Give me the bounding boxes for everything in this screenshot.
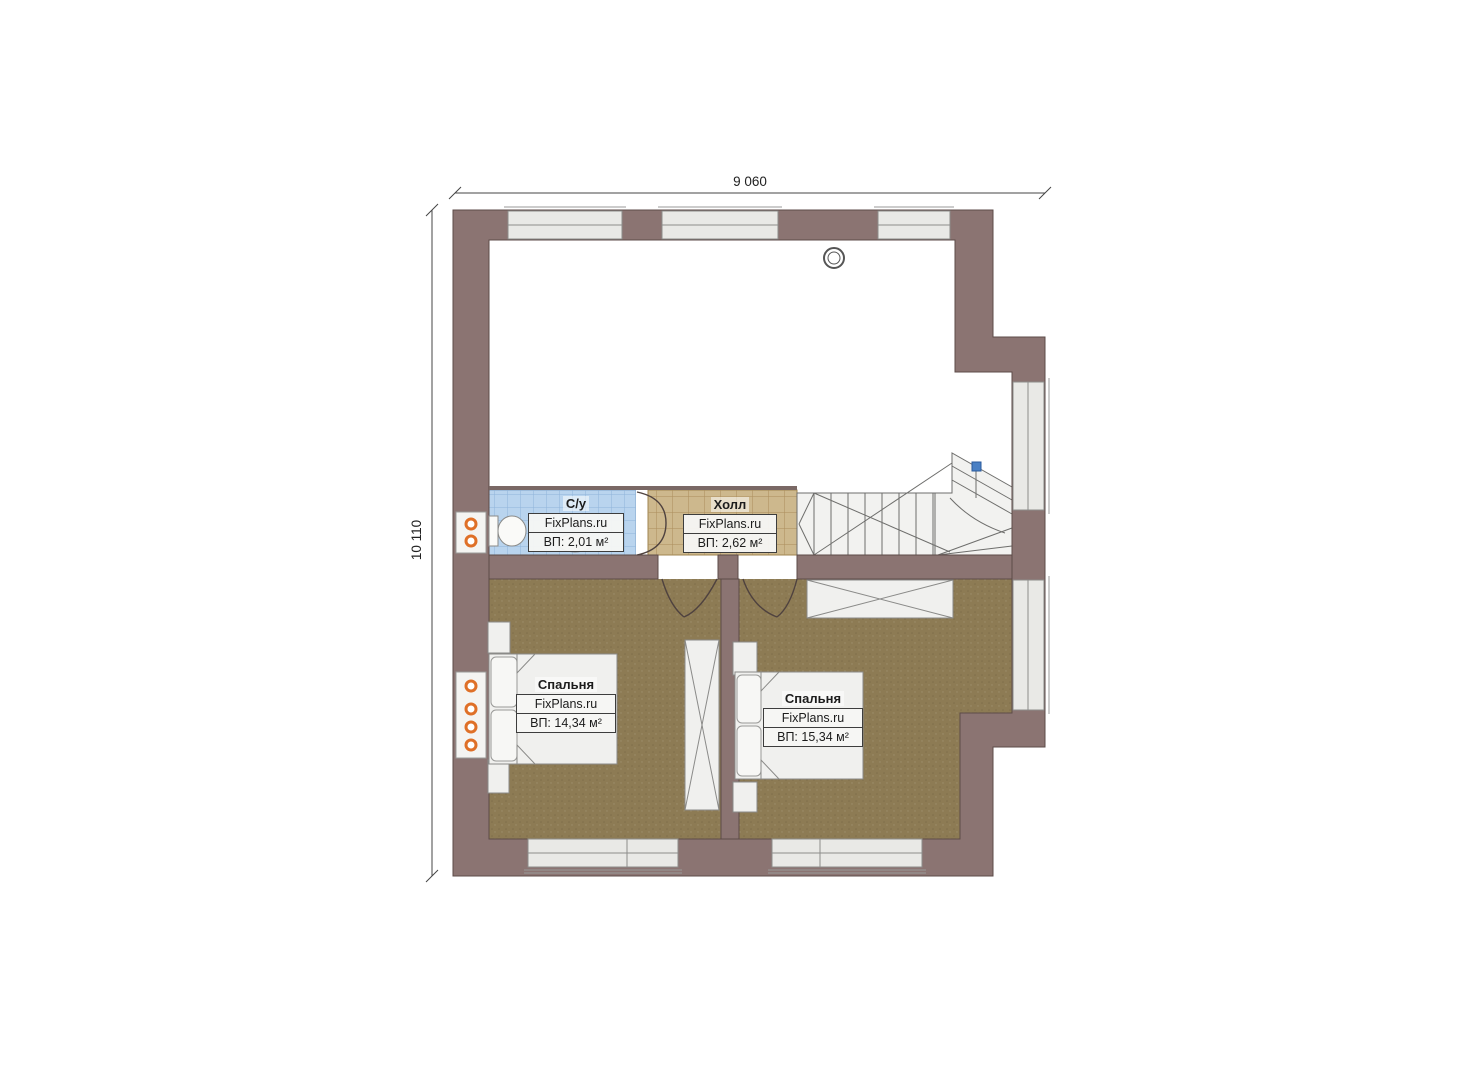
room-area-text: ВП: 14,34 м²	[517, 714, 615, 732]
room-label-hall: Холл FixPlans.ru ВП: 2,62 м²	[684, 497, 776, 553]
stair-direction-marker	[972, 462, 981, 471]
dimension-label-left: 10 110	[409, 510, 429, 570]
wardrobe-icon	[807, 580, 953, 618]
dimension-label-top: 9 060	[700, 174, 800, 189]
pillow-icon	[737, 675, 761, 723]
room-label-bathroom: С/у FixPlans.ru ВП: 2,01 м²	[529, 496, 623, 552]
watermark-text: FixPlans.ru	[684, 515, 776, 534]
room-info-box: FixPlans.ru ВП: 2,62 м²	[683, 514, 777, 553]
bathroom-door-threshold	[636, 490, 648, 555]
pillow-icon	[491, 710, 517, 761]
nightstand-icon	[488, 760, 509, 793]
nightstand-icon	[733, 782, 757, 812]
room-label-bedroom-left: Спальня FixPlans.ru ВП: 14,34 м²	[517, 677, 615, 733]
radiator-dot-icon	[466, 722, 476, 732]
floor-plan-page: 9 060 10 110 С/у FixPlans.ru ВП: 2,01 м²…	[0, 0, 1474, 1080]
room-info-box: FixPlans.ru ВП: 14,34 м²	[516, 694, 616, 733]
toilet-icon	[489, 516, 526, 546]
room-area-text: ВП: 2,01 м²	[529, 533, 623, 551]
room-area-text: ВП: 15,34 м²	[764, 728, 862, 746]
radiator-niche-bathroom	[456, 512, 486, 553]
radiator-dot-icon	[466, 536, 476, 546]
chimney-circle-icon	[824, 248, 844, 268]
radiator-dot-icon	[466, 519, 476, 529]
watermark-text: FixPlans.ru	[764, 709, 862, 728]
watermark-text: FixPlans.ru	[517, 695, 615, 714]
room-label-bedroom-right: Спальня FixPlans.ru ВП: 15,34 м²	[764, 691, 862, 747]
nightstand-icon	[733, 642, 757, 675]
pillow-icon	[491, 657, 517, 707]
pillow-icon	[737, 726, 761, 776]
room-info-box: FixPlans.ru ВП: 15,34 м²	[763, 708, 863, 747]
room-info-box: FixPlans.ru ВП: 2,01 м²	[528, 513, 624, 552]
room-title: Спальня	[535, 677, 597, 692]
room-title: С/у	[563, 496, 589, 511]
radiator-niche-bedroom	[456, 672, 486, 758]
watermark-text: FixPlans.ru	[529, 514, 623, 533]
room-title: Спальня	[782, 691, 844, 706]
radiator-dot-icon	[466, 704, 476, 714]
room-title: Холл	[711, 497, 750, 512]
radiator-dot-icon	[466, 681, 476, 691]
room-area-text: ВП: 2,62 м²	[684, 534, 776, 552]
radiator-dot-icon	[466, 740, 476, 750]
bathroom-hall-partition	[489, 486, 797, 490]
staircase	[797, 453, 1012, 555]
nightstand-icon	[488, 622, 510, 653]
wardrobe-icon	[685, 640, 719, 810]
